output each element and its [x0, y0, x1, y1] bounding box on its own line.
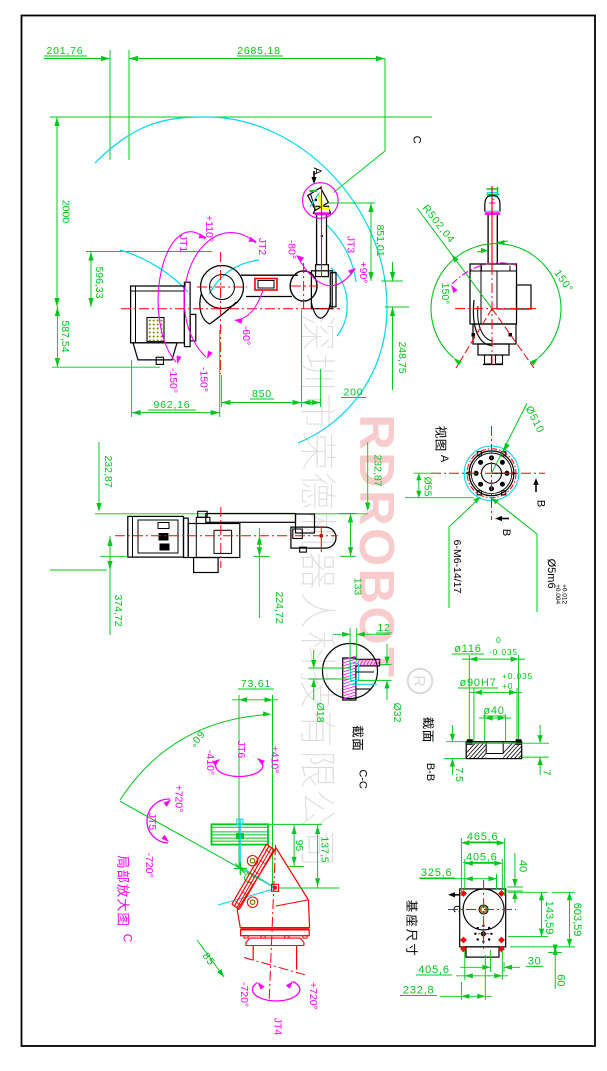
svg-text:143,59: 143,59 [543, 901, 555, 935]
svg-text:B: B [535, 500, 547, 507]
svg-text:232,87: 232,87 [372, 454, 384, 486]
svg-text:A: A [438, 455, 450, 463]
svg-text:-0.035: -0.035 [489, 647, 518, 657]
svg-text:73,61: 73,61 [241, 678, 271, 690]
svg-text:7: 7 [541, 770, 553, 776]
svg-text:851,01: 851,01 [374, 224, 386, 256]
svg-text:133: 133 [352, 578, 364, 596]
svg-text:ø116: ø116 [454, 643, 481, 655]
svg-text:C-C: C-C [357, 769, 369, 789]
svg-text:201,76: 201,76 [47, 45, 84, 57]
svg-text:224,72: 224,72 [273, 591, 285, 623]
svg-text:587,54: 587,54 [59, 320, 71, 352]
svg-text:+720°: +720° [307, 982, 319, 1010]
svg-text:ø90H7: ø90H7 [459, 677, 496, 689]
svg-text:30: 30 [528, 956, 542, 968]
svg-text:JT3: JT3 [345, 236, 357, 254]
svg-text:A: A [311, 167, 323, 175]
svg-text:B: B [500, 529, 512, 536]
svg-text:465,6: 465,6 [467, 831, 499, 843]
svg-text:150°: 150° [439, 283, 451, 305]
svg-text:JT1: JT1 [177, 235, 189, 253]
svg-text:-150°: -150° [198, 367, 210, 392]
svg-text:6-M6-14/17: 6-M6-14/17 [451, 540, 463, 594]
svg-text:JT4: JT4 [272, 1018, 284, 1036]
svg-text:603,59: 603,59 [571, 903, 583, 937]
svg-text:-80°: -80° [286, 240, 298, 259]
svg-text:405,6: 405,6 [418, 964, 450, 976]
svg-text:232,87: 232,87 [102, 455, 114, 487]
svg-text:-720°: -720° [238, 982, 250, 1007]
svg-text:B-B: B-B [424, 763, 436, 781]
svg-text:+410°: +410° [269, 746, 281, 774]
svg-text:7.5: 7.5 [453, 767, 465, 782]
svg-text:+0.012: +0.012 [561, 584, 568, 604]
svg-text:596,33: 596,33 [93, 266, 105, 298]
svg-text:Ø18: Ø18 [314, 703, 326, 723]
svg-text:ø40: ø40 [483, 705, 504, 717]
svg-text:-60°: -60° [240, 326, 252, 345]
svg-text:+90°: +90° [357, 261, 369, 283]
svg-text:R: R [410, 675, 427, 687]
svg-text:374,72: 374,72 [112, 594, 124, 626]
svg-text:C: C [411, 136, 423, 144]
svg-text:JT2: JT2 [256, 238, 268, 256]
svg-text:60: 60 [555, 974, 567, 986]
svg-text:Ø32: Ø32 [391, 703, 403, 723]
svg-text:95: 95 [293, 840, 305, 852]
svg-text:C: C [451, 905, 463, 913]
svg-text:325,6: 325,6 [421, 867, 453, 879]
svg-text:232,8: 232,8 [403, 985, 435, 997]
svg-text:Ø55: Ø55 [422, 477, 434, 497]
svg-text:-150°: -150° [167, 368, 179, 393]
svg-text:850: 850 [252, 388, 272, 400]
svg-text:137,5: 137,5 [319, 836, 331, 862]
svg-text:12: 12 [377, 622, 390, 634]
svg-text:C: C [121, 934, 135, 943]
svg-text:+0.035: +0.035 [502, 671, 533, 681]
svg-text:200: 200 [344, 387, 364, 399]
svg-text:+0: +0 [502, 681, 513, 691]
svg-text:40: 40 [516, 860, 528, 872]
svg-text:0: 0 [496, 635, 502, 645]
svg-text:2685,18: 2685,18 [237, 45, 281, 57]
svg-text:962,16: 962,16 [154, 399, 191, 411]
svg-text:+0.004: +0.004 [554, 584, 561, 604]
svg-text:248,75: 248,75 [396, 341, 408, 373]
svg-text:-720°: -720° [143, 853, 155, 878]
svg-text:+720°: +720° [172, 785, 184, 813]
svg-text:2000: 2000 [60, 200, 72, 224]
svg-text:JT6: JT6 [235, 741, 247, 759]
